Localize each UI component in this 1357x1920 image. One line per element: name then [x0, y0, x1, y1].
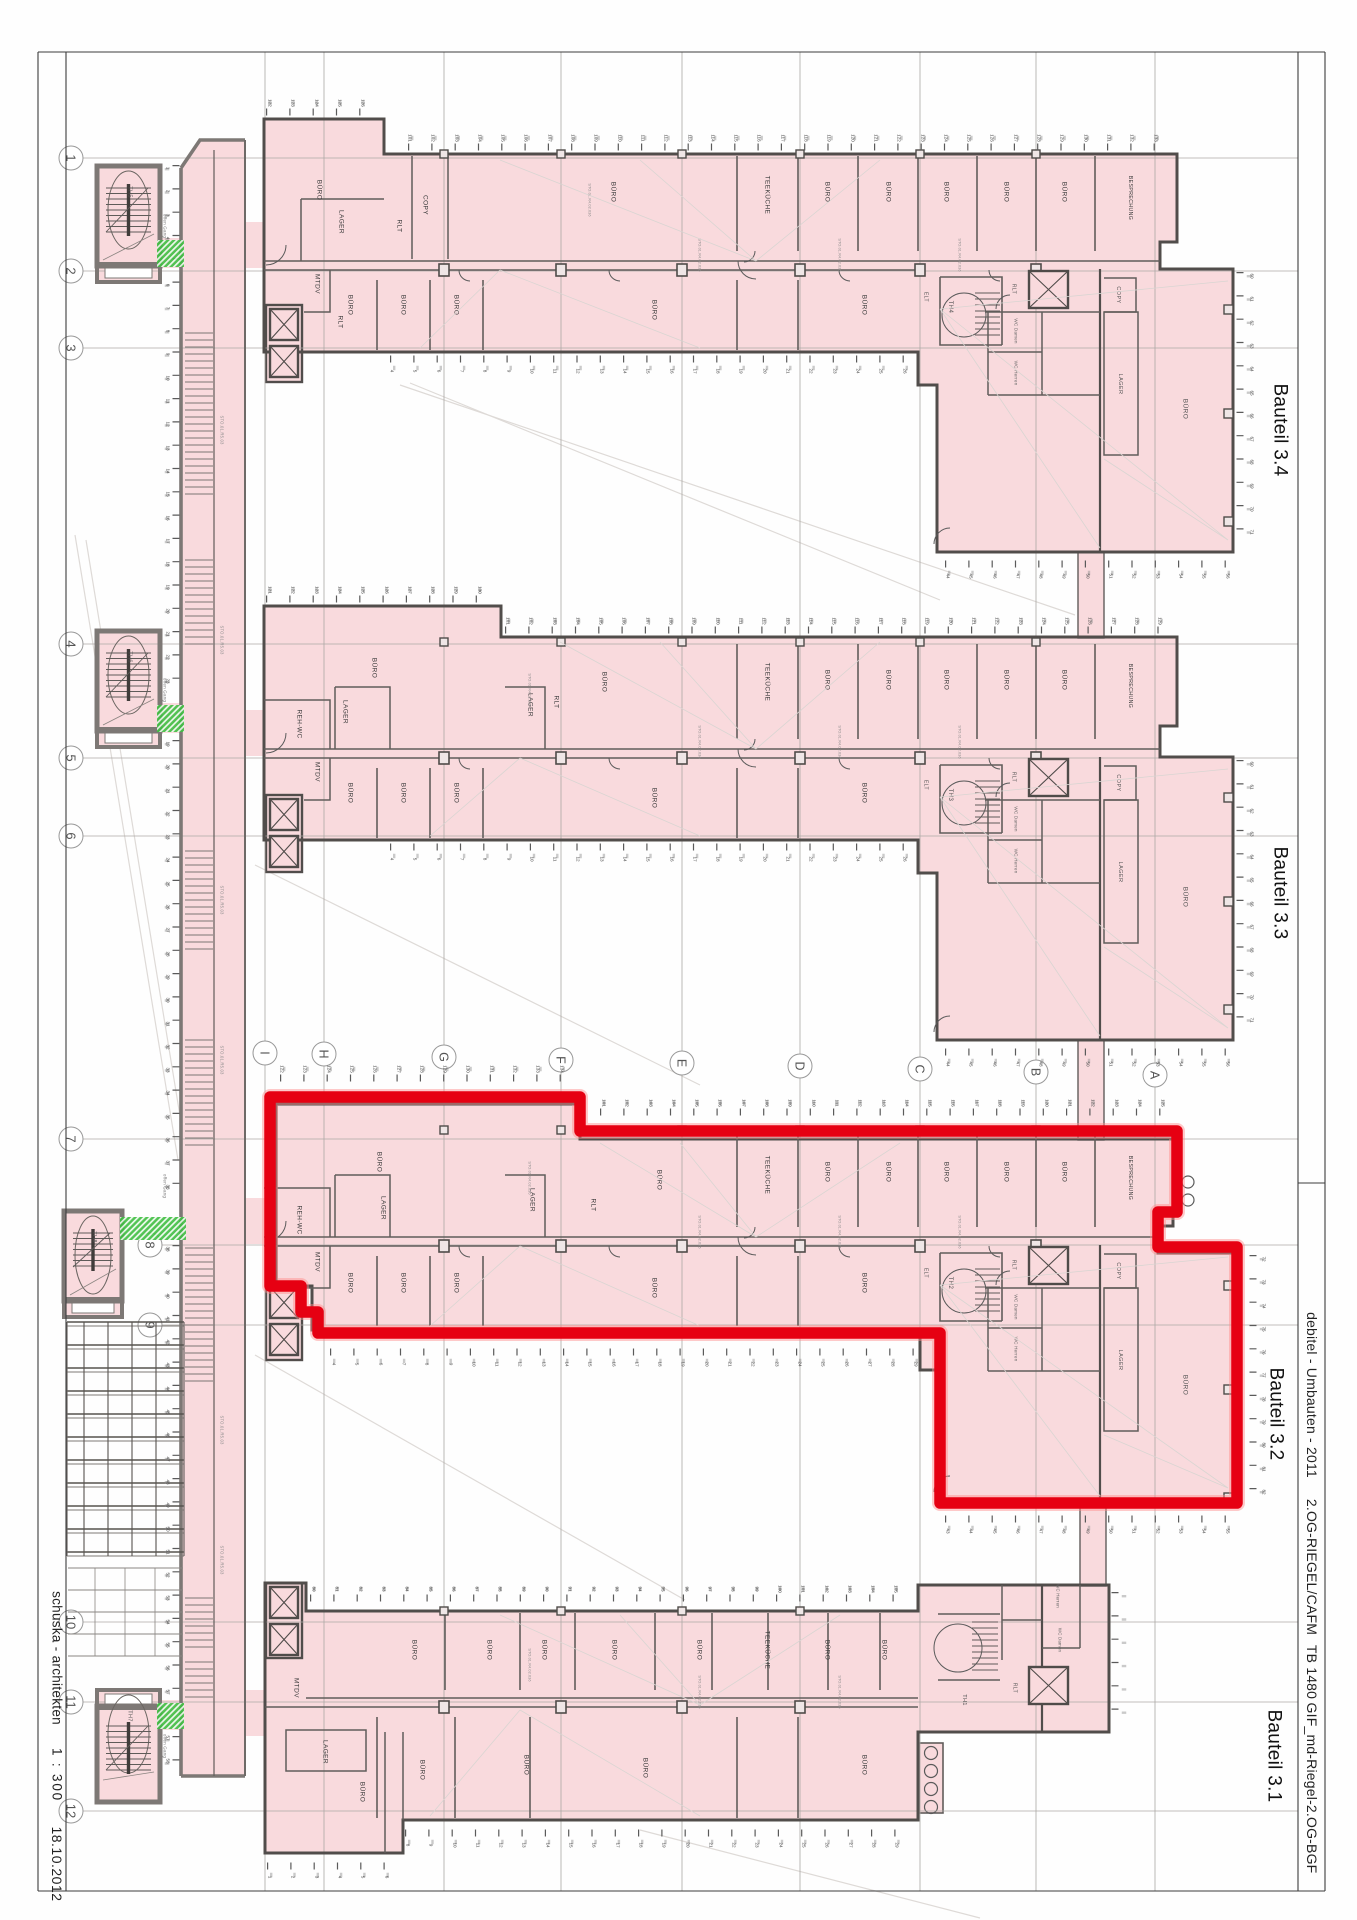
svg-text:1: 1: [165, 167, 170, 170]
svg-text:134: 134: [559, 1065, 564, 1073]
svg-text:122: 122: [290, 586, 295, 594]
svg-text:TEEKÜCHE: TEEKÜCHE: [764, 663, 772, 702]
svg-text:54: 54: [1178, 1061, 1183, 1067]
svg-text:BÜRO: BÜRO: [861, 295, 869, 315]
svg-text:104: 104: [870, 1585, 875, 1593]
svg-text:3: 3: [314, 1876, 319, 1879]
svg-text:126: 126: [989, 134, 994, 142]
svg-text:74: 74: [1261, 1303, 1266, 1309]
svg-text:58: 58: [165, 1758, 170, 1764]
svg-text:BÜRO: BÜRO: [861, 1755, 869, 1775]
svg-text:57: 57: [165, 1689, 170, 1695]
svg-text:26: 26: [902, 368, 907, 374]
svg-text:STO.01.R4.02.036: STO.01.R4.02.036: [958, 238, 962, 271]
svg-text:50: 50: [165, 1526, 170, 1532]
svg-text:126: 126: [372, 1065, 377, 1073]
svg-text:BÜRO: BÜRO: [400, 295, 408, 315]
svg-text:BÜRO: BÜRO: [1061, 670, 1069, 690]
svg-text:14: 14: [545, 1842, 550, 1848]
svg-text:18: 18: [657, 1361, 662, 1367]
svg-text:112: 112: [857, 1099, 862, 1107]
svg-text:116: 116: [854, 617, 859, 625]
svg-text:61: 61: [1249, 296, 1254, 302]
svg-text:112: 112: [663, 134, 668, 142]
svg-text:22: 22: [808, 856, 813, 862]
svg-text:47: 47: [1015, 1061, 1020, 1067]
svg-text:121: 121: [873, 134, 878, 142]
svg-text:E: E: [675, 1059, 689, 1067]
svg-text:23: 23: [832, 368, 837, 374]
svg-text:69: 69: [1249, 971, 1254, 977]
svg-text:9: 9: [506, 858, 511, 861]
svg-text:126: 126: [360, 99, 365, 107]
svg-text:BÜRO: BÜRO: [347, 1273, 355, 1293]
svg-text:5: 5: [412, 370, 417, 373]
svg-text:104: 104: [575, 617, 580, 625]
svg-text:18: 18: [165, 561, 170, 567]
svg-text:81: 81: [1261, 1466, 1266, 1472]
svg-text:51: 51: [1131, 1528, 1136, 1534]
svg-text:BÜRO: BÜRO: [347, 783, 355, 803]
svg-text:124: 124: [943, 134, 948, 142]
svg-text:82: 82: [358, 1586, 363, 1592]
svg-text:6: 6: [384, 1876, 389, 1879]
svg-text:44: 44: [945, 573, 950, 579]
svg-text:26: 26: [824, 1842, 829, 1848]
svg-text:15: 15: [645, 856, 650, 862]
svg-text:25: 25: [165, 881, 170, 887]
svg-text:BÜRO: BÜRO: [400, 783, 408, 803]
svg-text:10: 10: [471, 1361, 476, 1367]
svg-text:BÜRO: BÜRO: [411, 1640, 419, 1660]
svg-text:STO.01.R4.02.036: STO.01.R4.02.036: [528, 1161, 532, 1194]
svg-text:38: 38: [165, 1246, 170, 1252]
svg-text:21: 21: [165, 631, 170, 637]
svg-text:WC Herren: WC Herren: [1013, 849, 1018, 874]
svg-text:21: 21: [785, 368, 790, 374]
svg-text:65: 65: [1249, 390, 1254, 396]
svg-text:122: 122: [279, 1065, 284, 1073]
svg-text:68: 68: [1249, 947, 1254, 953]
svg-text:BESPRECHUNG: BESPRECHUNG: [1127, 664, 1133, 708]
svg-text:22: 22: [750, 1361, 755, 1367]
svg-text:26: 26: [902, 856, 907, 862]
svg-text:124: 124: [1137, 1099, 1142, 1107]
svg-text:41: 41: [165, 1316, 170, 1322]
svg-text:123: 123: [302, 1065, 307, 1073]
svg-text:BÜRO: BÜRO: [885, 670, 893, 690]
svg-text:Bauteil 3.4: Bauteil 3.4: [1269, 383, 1290, 476]
svg-text:53: 53: [1178, 1528, 1183, 1534]
svg-text:53: 53: [165, 1595, 170, 1601]
svg-text:84: 84: [404, 1586, 409, 1592]
svg-text:STO.01.R4.02.036: STO.01.R4.02.036: [698, 725, 702, 758]
svg-text:TH2: TH2: [947, 1277, 953, 1290]
svg-text:4: 4: [389, 370, 394, 373]
svg-text:ELT: ELT: [922, 1268, 928, 1278]
svg-text:2: 2: [290, 1876, 295, 1879]
svg-text:25: 25: [801, 1842, 806, 1848]
svg-text:29: 29: [165, 974, 170, 980]
svg-text:17: 17: [634, 1361, 639, 1367]
svg-text:90: 90: [544, 1586, 549, 1592]
svg-text:STO.01.R4.02.036: STO.01.R4.02.036: [838, 1675, 842, 1708]
svg-text:RLT: RLT: [553, 696, 560, 709]
svg-text:53: 53: [1155, 573, 1160, 579]
svg-text:8: 8: [142, 1241, 157, 1248]
svg-text:120: 120: [948, 617, 953, 625]
svg-text:BÜRO: BÜRO: [1061, 1162, 1069, 1182]
svg-text:93: 93: [614, 1586, 619, 1592]
svg-text:9: 9: [506, 370, 511, 373]
svg-text:STO.01.R4.02.036: STO.01.R4.02.036: [838, 725, 842, 758]
svg-text:RLT: RLT: [1010, 284, 1016, 294]
svg-text:Bauteil 3.2: Bauteil 3.2: [1265, 1367, 1286, 1460]
svg-text:BÜRO: BÜRO: [1003, 182, 1011, 202]
svg-text:50: 50: [1085, 573, 1090, 579]
svg-text:67: 67: [1249, 436, 1254, 442]
svg-text:66: 66: [1249, 413, 1254, 419]
svg-text:17: 17: [692, 856, 697, 862]
svg-text:102: 102: [824, 1585, 829, 1593]
svg-text:B: B: [1029, 1068, 1043, 1076]
svg-text:BÜRO: BÜRO: [453, 783, 461, 803]
svg-text:68: 68: [1249, 459, 1254, 465]
svg-text:63: 63: [1249, 343, 1254, 349]
svg-text:24: 24: [855, 368, 860, 374]
svg-text:BÜRO: BÜRO: [696, 1640, 704, 1660]
svg-text:F: F: [554, 1056, 568, 1064]
svg-text:MTDV: MTDV: [293, 1678, 300, 1698]
svg-text:BÜRO: BÜRO: [371, 658, 379, 678]
svg-text:129: 129: [453, 586, 458, 594]
svg-text:BÜRO: BÜRO: [1182, 1375, 1190, 1395]
svg-text:49: 49: [1061, 573, 1066, 579]
svg-text:30: 30: [165, 997, 170, 1003]
svg-text:4: 4: [389, 858, 394, 861]
svg-text:20: 20: [165, 764, 170, 770]
svg-text:WC Damen: WC Damen: [1013, 1294, 1018, 1320]
svg-text:12: 12: [165, 421, 170, 427]
svg-text:BÜRO: BÜRO: [824, 1162, 832, 1182]
svg-text:LAGER: LAGER: [380, 1196, 387, 1220]
svg-text:115: 115: [733, 134, 738, 142]
svg-text:119: 119: [1020, 1099, 1025, 1107]
svg-text:47: 47: [165, 1456, 170, 1462]
svg-text:65: 65: [1249, 877, 1254, 883]
svg-text:MTDV: MTDV: [314, 1252, 321, 1272]
svg-text:60: 60: [1249, 761, 1254, 767]
svg-text:BÜRO: BÜRO: [1003, 670, 1011, 690]
svg-text:108: 108: [764, 1099, 769, 1107]
svg-text:H: H: [317, 1049, 331, 1058]
svg-text:15: 15: [568, 1842, 573, 1848]
svg-text:RLT: RLT: [1010, 1260, 1016, 1270]
svg-text:105: 105: [598, 617, 603, 625]
svg-text:STO.01.R5.03: STO.01.R5.03: [220, 1045, 225, 1075]
svg-text:19: 19: [661, 1842, 666, 1848]
svg-text:ELT: ELT: [922, 780, 928, 790]
svg-text:BÜRO: BÜRO: [656, 1170, 664, 1190]
svg-text:WC Herren: WC Herren: [1013, 1337, 1018, 1362]
svg-text:50: 50: [1108, 1528, 1113, 1534]
svg-text:12: 12: [498, 1842, 503, 1848]
svg-text:BESPRECHUNG: BESPRECHUNG: [1127, 1156, 1133, 1200]
svg-text:8: 8: [165, 330, 170, 333]
svg-text:25: 25: [878, 368, 883, 374]
svg-text:72: 72: [1261, 1256, 1266, 1262]
svg-text:46: 46: [1015, 1528, 1020, 1534]
svg-text:18: 18: [715, 856, 720, 862]
svg-text:6: 6: [378, 1363, 383, 1366]
svg-text:121: 121: [267, 586, 272, 594]
svg-text:106: 106: [717, 1099, 722, 1107]
svg-text:125: 125: [360, 586, 365, 594]
svg-text:GIF_md-Riegel-2.OG-BGF: GIF_md-Riegel-2.OG-BGF: [1304, 1703, 1320, 1874]
svg-text:STO.01.R4.02.036: STO.01.R4.02.036: [958, 1215, 962, 1248]
svg-text:22: 22: [165, 654, 170, 660]
svg-text:STO.01.R5.03: STO.01.R5.03: [220, 415, 225, 445]
svg-text:19: 19: [738, 368, 743, 374]
svg-text:I: I: [258, 1051, 272, 1054]
svg-text:107: 107: [741, 1099, 746, 1107]
svg-text:STO.01.R4.02.036: STO.01.R4.02.036: [958, 725, 962, 758]
svg-text:27: 27: [165, 927, 170, 933]
svg-text:TH4: TH4: [947, 301, 953, 314]
svg-text:29: 29: [913, 1361, 918, 1367]
svg-text:34: 34: [165, 1090, 170, 1096]
svg-text:35: 35: [165, 1114, 170, 1120]
svg-text:109: 109: [787, 1099, 792, 1107]
svg-text:9: 9: [428, 1844, 433, 1847]
svg-text:7: 7: [459, 858, 464, 861]
svg-text:119: 119: [826, 134, 831, 142]
svg-text:BÜRO: BÜRO: [347, 295, 355, 315]
svg-text:55: 55: [165, 1642, 170, 1648]
svg-text:BÜRO: BÜRO: [824, 1640, 832, 1660]
svg-text:BÜRO: BÜRO: [453, 1273, 461, 1293]
svg-text:15: 15: [645, 368, 650, 374]
svg-text:44: 44: [165, 1386, 170, 1392]
svg-text:120: 120: [1044, 1099, 1049, 1107]
svg-text:17: 17: [692, 368, 697, 374]
svg-text:63: 63: [1249, 831, 1254, 837]
svg-text:TH6: TH6: [127, 651, 133, 663]
svg-text:101: 101: [505, 617, 510, 625]
svg-text:123: 123: [314, 586, 319, 594]
svg-text:133: 133: [535, 1065, 540, 1073]
svg-text:LAGER: LAGER: [338, 210, 345, 234]
svg-text:89: 89: [521, 1586, 526, 1592]
svg-text:128: 128: [419, 1065, 424, 1073]
svg-text:130: 130: [477, 586, 482, 594]
svg-text:125: 125: [966, 134, 971, 142]
svg-text:120: 120: [850, 134, 855, 142]
svg-text:125: 125: [337, 99, 342, 107]
svg-text:54: 54: [1201, 1528, 1206, 1534]
svg-text:10: 10: [529, 368, 534, 374]
svg-text:116: 116: [950, 1099, 955, 1107]
svg-text:82: 82: [1261, 1489, 1266, 1495]
svg-text:56: 56: [1225, 1061, 1230, 1067]
svg-text:51: 51: [165, 1549, 170, 1555]
svg-text:73: 73: [1261, 1279, 1266, 1285]
svg-text:7: 7: [165, 307, 170, 310]
svg-text:128: 128: [1036, 134, 1041, 142]
svg-text:45: 45: [992, 1528, 997, 1534]
svg-text:14: 14: [622, 856, 627, 862]
svg-text:44: 44: [968, 1528, 973, 1534]
svg-text:45: 45: [968, 1061, 973, 1067]
svg-text:45: 45: [968, 573, 973, 579]
svg-text:50: 50: [1085, 1061, 1090, 1067]
svg-text:87: 87: [474, 1586, 479, 1592]
svg-text:8: 8: [405, 1844, 410, 1847]
svg-text:STO.01.R5.03: STO.01.R5.03: [220, 885, 225, 915]
svg-text:125: 125: [1064, 617, 1069, 625]
svg-text:STO.01.R5.03: STO.01.R5.03: [220, 625, 225, 655]
svg-text:52: 52: [1155, 1528, 1160, 1534]
svg-text:11: 11: [552, 369, 557, 374]
svg-text:24: 24: [165, 857, 170, 863]
svg-text:25: 25: [878, 856, 883, 862]
svg-text:122: 122: [896, 134, 901, 142]
svg-text:116: 116: [756, 134, 761, 142]
svg-text:ELT: ELT: [922, 292, 928, 302]
svg-text:54: 54: [165, 1619, 170, 1625]
svg-text:43: 43: [945, 1528, 950, 1534]
svg-text:118: 118: [997, 1099, 1002, 1107]
svg-text:BÜRO: BÜRO: [376, 1152, 384, 1172]
svg-text:STO.01.R4.02.036: STO.01.R4.02.036: [528, 1648, 532, 1681]
svg-text:92: 92: [591, 1586, 596, 1592]
svg-text:85: 85: [428, 1586, 433, 1592]
svg-text:131: 131: [1106, 134, 1111, 142]
svg-text:98: 98: [730, 1586, 735, 1592]
svg-text:RLT: RLT: [396, 220, 403, 233]
svg-text:24: 24: [855, 856, 860, 862]
svg-text:119: 119: [924, 617, 929, 625]
svg-text:94: 94: [637, 1586, 642, 1592]
svg-text:108: 108: [668, 617, 673, 625]
svg-text:45: 45: [165, 1409, 170, 1415]
svg-text:23: 23: [165, 834, 170, 840]
svg-text:49: 49: [165, 1502, 170, 1508]
svg-text:TEEKÜCHE: TEEKÜCHE: [764, 176, 772, 215]
svg-text:19: 19: [165, 584, 170, 590]
svg-text:8: 8: [482, 858, 487, 861]
svg-text:12: 12: [575, 856, 580, 862]
svg-text:105: 105: [694, 1099, 699, 1107]
svg-text:97: 97: [707, 1586, 712, 1592]
svg-text:9: 9: [165, 353, 170, 356]
svg-text:10: 10: [529, 856, 534, 862]
svg-text:103: 103: [648, 1099, 653, 1107]
svg-text:7: 7: [459, 370, 464, 373]
svg-text:109: 109: [691, 617, 696, 625]
svg-text:99: 99: [754, 1586, 759, 1592]
svg-text:TH1: TH1: [961, 1694, 967, 1706]
svg-text:18: 18: [715, 368, 720, 374]
svg-text:BÜRO: BÜRO: [1182, 399, 1190, 419]
svg-text:48: 48: [1038, 1061, 1043, 1067]
svg-text:46: 46: [992, 573, 997, 579]
svg-text:127: 127: [1111, 617, 1116, 625]
svg-text:20: 20: [165, 608, 170, 614]
svg-text:RLT: RLT: [590, 1199, 597, 1212]
svg-text:schuska - architekten: schuska - architekten: [49, 1591, 64, 1725]
svg-text:WC Herren: WC Herren: [1055, 1584, 1060, 1608]
svg-text:111: 111: [738, 618, 743, 625]
svg-text:113: 113: [881, 1099, 886, 1107]
svg-text:12: 12: [575, 368, 580, 374]
svg-text:129: 129: [442, 1065, 447, 1073]
svg-text:9: 9: [448, 1363, 453, 1366]
svg-text:52: 52: [1131, 1061, 1136, 1067]
svg-text:48: 48: [165, 1479, 170, 1485]
svg-text:64: 64: [1249, 366, 1254, 372]
svg-text:21: 21: [785, 856, 790, 862]
svg-text:MTDV: MTDV: [314, 762, 321, 782]
svg-text:28: 28: [871, 1842, 876, 1848]
svg-text:102: 102: [624, 1099, 629, 1107]
svg-text:20: 20: [704, 1361, 709, 1367]
svg-text:STO.01.R5.03: STO.01.R5.03: [220, 1415, 225, 1445]
svg-text:8: 8: [424, 1363, 429, 1366]
svg-text:103: 103: [454, 134, 459, 142]
svg-text:124: 124: [1041, 617, 1046, 625]
svg-text:22: 22: [808, 368, 813, 374]
svg-text:64: 64: [1249, 854, 1254, 860]
svg-text:13: 13: [541, 1361, 546, 1367]
svg-text:70: 70: [1249, 506, 1254, 512]
svg-text:95: 95: [660, 1586, 665, 1592]
svg-text:WC Damen: WC Damen: [1057, 1628, 1062, 1653]
svg-text:88: 88: [497, 1586, 502, 1592]
svg-text:STO.01.R4.02.036: STO.01.R4.02.036: [588, 183, 592, 216]
svg-text:BÜRO: BÜRO: [419, 1760, 427, 1780]
svg-text:22: 22: [165, 811, 170, 817]
svg-text:BÜRO: BÜRO: [1061, 182, 1069, 202]
svg-text:20: 20: [685, 1842, 690, 1848]
svg-text:10: 10: [452, 1842, 457, 1848]
svg-text:111: 111: [640, 135, 645, 142]
svg-text:REH-WC: REH-WC: [296, 709, 303, 738]
svg-text:4: 4: [331, 1363, 336, 1366]
svg-text:26: 26: [165, 904, 170, 910]
svg-text:4: 4: [337, 1876, 342, 1879]
svg-text:101: 101: [407, 134, 412, 142]
svg-text:COPY: COPY: [422, 195, 429, 215]
svg-text:16: 16: [165, 515, 170, 521]
svg-text:126: 126: [384, 586, 389, 594]
svg-text:29: 29: [894, 1842, 899, 1848]
svg-text:RLT: RLT: [1011, 1683, 1017, 1693]
svg-text:117: 117: [974, 1099, 979, 1107]
svg-text:LAGER: LAGER: [342, 700, 349, 724]
svg-text:111: 111: [834, 1100, 839, 1107]
svg-text:54: 54: [1178, 573, 1183, 579]
svg-text:COPY: COPY: [1115, 286, 1121, 303]
svg-text:127: 127: [396, 1065, 401, 1073]
svg-text:BÜRO: BÜRO: [881, 1640, 889, 1660]
svg-text:123: 123: [1018, 617, 1023, 625]
svg-text:70: 70: [1249, 994, 1254, 1000]
svg-text:28: 28: [165, 951, 170, 957]
svg-text:21: 21: [708, 1842, 713, 1848]
svg-text:STO.01.R4.02.036: STO.01.R4.02.036: [528, 673, 532, 706]
svg-text:18.10.2012: 18.10.2012: [49, 1826, 65, 1901]
